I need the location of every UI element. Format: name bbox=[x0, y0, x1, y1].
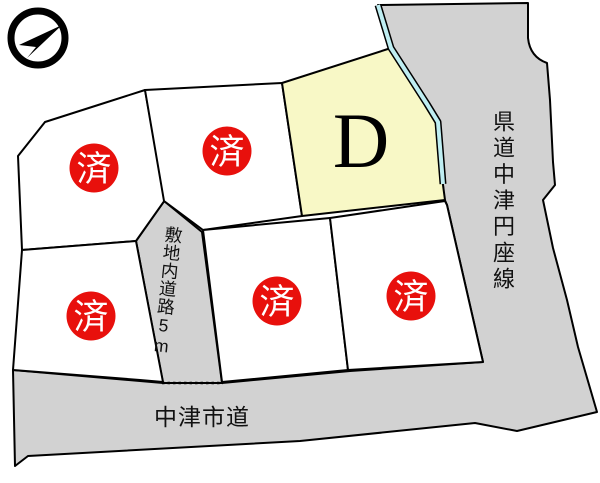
road-label-prefectural: 県道中津円座線 bbox=[486, 110, 518, 293]
svg-text:済: 済 bbox=[259, 283, 294, 322]
plot-d-label: D bbox=[333, 97, 389, 184]
svg-text:済: 済 bbox=[73, 298, 108, 337]
north-arrow-icon bbox=[11, 11, 65, 65]
sold-stamp-upper-middle: 済 bbox=[203, 127, 252, 176]
svg-text:済: 済 bbox=[209, 133, 244, 172]
road-label-city: 中津市道 bbox=[154, 398, 250, 432]
sold-stamp-upper-left: 済 bbox=[70, 144, 119, 193]
site-plan-map: D 済 済 済 済 済 県道中津円座線 敷地内道路5m 中津市道 bbox=[0, 0, 600, 483]
sold-stamp-lower-right: 済 bbox=[387, 272, 436, 321]
svg-text:済: 済 bbox=[393, 278, 428, 317]
sold-stamp-lower-left: 済 bbox=[67, 292, 116, 341]
sold-stamp-lower-middle: 済 bbox=[253, 277, 302, 326]
svg-text:済: 済 bbox=[76, 150, 111, 189]
